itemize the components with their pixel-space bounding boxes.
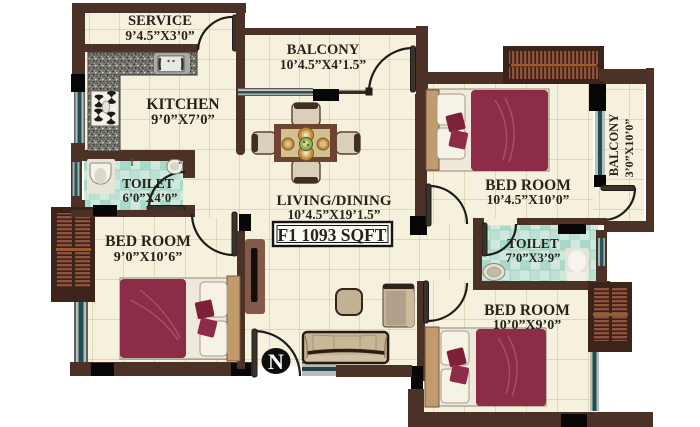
svg-text:9’0”X10’6”: 9’0”X10’6” <box>114 250 182 265</box>
svg-text:9’4.5”X3’0”: 9’4.5”X3’0” <box>125 28 195 43</box>
svg-text:SERVICE: SERVICE <box>128 13 192 29</box>
svg-text:TOILET: TOILET <box>507 236 559 251</box>
svg-text:10’4.5”X19’1.5”: 10’4.5”X19’1.5” <box>288 207 381 222</box>
svg-text:9’0”X7’0”: 9’0”X7’0” <box>151 112 215 128</box>
svg-text:10’0”X9’0”: 10’0”X9’0” <box>493 318 561 333</box>
svg-text:KITCHEN: KITCHEN <box>146 96 219 113</box>
svg-text:7’0”X3’9”: 7’0”X3’9” <box>506 251 561 265</box>
svg-text:BED ROOM: BED ROOM <box>484 302 570 319</box>
svg-text:BALCONY: BALCONY <box>607 114 621 177</box>
svg-text:10’4.5”X10’0”: 10’4.5”X10’0” <box>487 192 570 207</box>
svg-text:BED ROOM: BED ROOM <box>105 233 191 250</box>
svg-text:F1 1093 SQFT: F1 1093 SQFT <box>278 225 387 245</box>
svg-text:10’4.5”X4’1.5”: 10’4.5”X4’1.5” <box>280 57 366 72</box>
svg-text:TOILET: TOILET <box>122 176 174 191</box>
svg-text:3’0”X10’0”: 3’0”X10’0” <box>622 119 636 178</box>
svg-text:N: N <box>268 349 284 374</box>
svg-text:BALCONY: BALCONY <box>287 42 360 58</box>
svg-text:6’0”X4’0”: 6’0”X4’0” <box>123 191 178 205</box>
